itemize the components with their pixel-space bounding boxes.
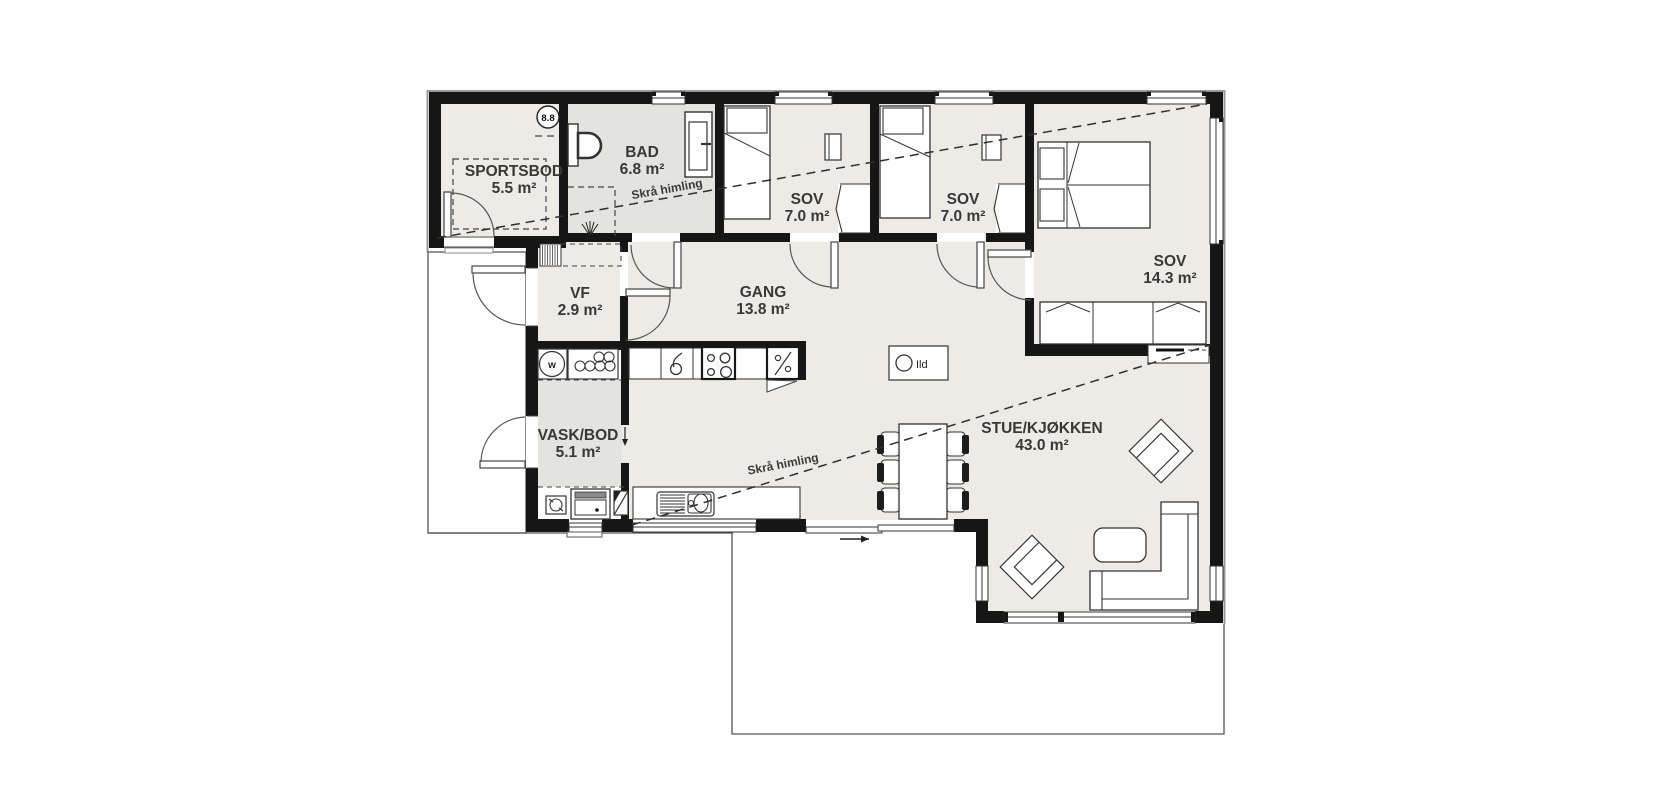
svg-text:VF: VF	[570, 285, 590, 302]
svg-text:GANG: GANG	[740, 284, 787, 301]
svg-text:43.0 m²: 43.0 m²	[1015, 437, 1068, 454]
svg-text:2.9 m²: 2.9 m²	[558, 302, 603, 319]
svg-text:BAD: BAD	[625, 144, 659, 161]
svg-text:VASK/BOD: VASK/BOD	[538, 427, 619, 444]
svg-text:Ild: Ild	[916, 359, 928, 371]
svg-text:w: w	[547, 360, 556, 371]
svg-text:6.8 m²: 6.8 m²	[620, 161, 665, 178]
svg-text:7.0 m²: 7.0 m²	[785, 208, 830, 225]
svg-text:8.8: 8.8	[541, 113, 554, 124]
svg-text:STUE/KJØKKEN: STUE/KJØKKEN	[981, 420, 1102, 437]
svg-text:13.8 m²: 13.8 m²	[736, 301, 789, 318]
svg-text:SOV: SOV	[791, 191, 824, 208]
svg-text:SOV: SOV	[947, 191, 980, 208]
svg-text:14.3 m²: 14.3 m²	[1143, 270, 1196, 287]
svg-text:SOV: SOV	[1154, 253, 1187, 270]
svg-text:5.5 m²: 5.5 m²	[492, 180, 537, 197]
svg-text:7.0 m²: 7.0 m²	[941, 208, 986, 225]
svg-text:5.1 m²: 5.1 m²	[556, 444, 601, 461]
svg-text:SPORTSBOD: SPORTSBOD	[465, 163, 563, 180]
